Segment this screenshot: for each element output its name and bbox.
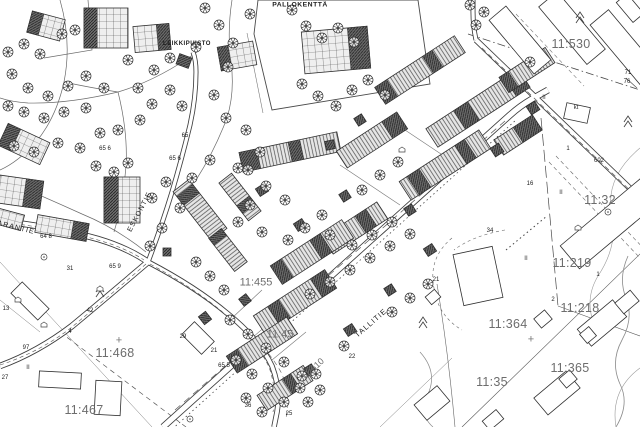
storey-mark: II xyxy=(542,95,545,101)
tree-symbol xyxy=(43,91,53,101)
tree-symbol xyxy=(263,383,273,393)
plot-number: 31 xyxy=(67,266,74,272)
building xyxy=(0,175,44,209)
tree-symbol xyxy=(225,315,235,325)
tree-symbol xyxy=(279,397,289,407)
tree-symbol xyxy=(135,115,145,125)
tree-symbol xyxy=(145,241,155,251)
tree-symbol xyxy=(219,285,229,295)
tree-symbol xyxy=(365,253,375,263)
tree-symbol xyxy=(479,7,489,17)
tree-symbol xyxy=(331,101,341,111)
building xyxy=(163,248,171,256)
tree-symbol xyxy=(191,257,201,267)
tree-symbol xyxy=(325,230,335,240)
parcel-label-11-32: 11:32 xyxy=(584,194,616,207)
tree-symbol xyxy=(255,147,265,157)
elevation-number: 65 6 xyxy=(169,156,181,162)
plot-number: 76 xyxy=(624,79,631,85)
tree-symbol xyxy=(161,177,171,187)
tree-symbol xyxy=(405,229,415,239)
elevation-number: 65 9 xyxy=(109,264,121,270)
building xyxy=(482,410,504,427)
tree-symbol xyxy=(228,38,238,48)
tree-symbol xyxy=(315,385,325,395)
well-icon xyxy=(187,416,193,422)
tree-symbol xyxy=(393,157,403,167)
tree-symbol xyxy=(325,277,335,287)
tree-symbol xyxy=(241,393,251,403)
tree-symbol xyxy=(81,103,91,113)
building xyxy=(239,294,252,307)
tree-symbol xyxy=(205,271,215,281)
tree-symbol xyxy=(333,23,343,33)
elevation-number: 65 xyxy=(182,133,189,139)
parcel-label-11-467: 11:467 xyxy=(64,404,103,417)
tree-symbol xyxy=(357,185,367,195)
building xyxy=(176,54,192,69)
plot-number: 1 xyxy=(566,146,569,152)
tree-symbol xyxy=(313,91,323,101)
tree-symbol xyxy=(123,55,133,65)
building xyxy=(534,310,552,328)
conifer-icon xyxy=(419,317,427,328)
tree-symbol xyxy=(209,90,219,100)
tree-symbol xyxy=(345,265,355,275)
tree-symbol xyxy=(261,343,271,353)
tree-symbol xyxy=(385,241,395,251)
elevation-number: 65 5 xyxy=(218,363,230,369)
plot-number: 22 xyxy=(349,354,356,360)
tree-symbol xyxy=(99,83,109,93)
building xyxy=(133,23,171,52)
tree-symbol xyxy=(165,85,175,95)
tree-symbol xyxy=(95,128,105,138)
tree-symbol xyxy=(283,235,293,245)
plot-number: 34 xyxy=(487,228,494,234)
tree-symbol xyxy=(157,223,167,233)
building xyxy=(39,371,82,389)
building xyxy=(84,8,128,48)
tree-symbol xyxy=(205,155,215,165)
tree-symbol xyxy=(465,0,475,10)
building xyxy=(270,220,353,285)
tree-symbol xyxy=(301,21,311,31)
tree-symbol xyxy=(29,147,39,157)
tree-symbol xyxy=(245,9,255,19)
storey-mark: II xyxy=(26,365,29,371)
building xyxy=(301,26,370,74)
area-label-pallokentta: PALLOKENTTÄ xyxy=(272,3,328,10)
tree-symbol xyxy=(280,195,290,205)
tree-symbol xyxy=(35,49,45,59)
tree-symbol xyxy=(7,69,17,79)
tree-symbol xyxy=(231,355,241,365)
storey-mark: II xyxy=(524,256,527,262)
plot-number: 42 xyxy=(87,308,94,314)
boulder-icon xyxy=(97,286,103,291)
plot-number: 4 xyxy=(68,329,71,335)
parcel-label-11-365: 11:365 xyxy=(550,362,589,375)
area-label-leikkipuisto: LEIKKIPUISTO xyxy=(163,41,211,47)
parcel-label-11-219: 11:219 xyxy=(552,257,591,270)
tree-symbol xyxy=(243,165,253,175)
tree-symbol xyxy=(387,217,397,227)
plot-number: 1 xyxy=(596,272,599,278)
plot-number: 25 xyxy=(286,411,293,417)
tree-symbol xyxy=(525,57,535,67)
plot-number: 21 xyxy=(433,277,440,283)
building xyxy=(354,114,366,126)
elevation-number: 64 8 xyxy=(40,234,52,240)
tree-symbol xyxy=(75,143,85,153)
plot-number: 2 xyxy=(551,297,554,303)
building xyxy=(198,311,211,324)
boulder-icon xyxy=(399,147,405,152)
building xyxy=(325,140,336,151)
building xyxy=(423,244,436,257)
tree-symbol xyxy=(59,107,69,117)
tree-symbol xyxy=(233,217,243,227)
plot-number: 13 xyxy=(3,306,10,312)
plot-number: 36 xyxy=(245,403,252,409)
building xyxy=(339,190,351,202)
storey-mark: II xyxy=(559,190,562,196)
plot-number: 71 xyxy=(625,70,632,76)
plot-number: 21 xyxy=(211,348,218,354)
parcel-label-11-218: 11:218 xyxy=(560,302,599,315)
building xyxy=(414,386,450,421)
conifer-icon xyxy=(624,116,632,127)
tree-symbol xyxy=(221,113,231,123)
tree-symbol xyxy=(303,397,313,407)
tree-symbol xyxy=(245,200,255,210)
well-icon xyxy=(41,254,47,260)
tree-symbol xyxy=(257,407,267,417)
tree-symbol xyxy=(279,357,289,367)
tree-symbol xyxy=(375,170,385,180)
tree-symbol xyxy=(295,383,305,393)
tree-symbol xyxy=(367,230,377,240)
building xyxy=(0,123,50,164)
parcel-label-11-455: 11:455 xyxy=(240,278,273,289)
tree-symbol xyxy=(113,125,123,135)
tree-symbol xyxy=(339,341,349,351)
tree-symbol xyxy=(223,62,233,72)
parcel-label-11-468: 11:468 xyxy=(95,347,134,360)
boulder-icon xyxy=(41,322,47,327)
tree-symbol xyxy=(57,29,67,39)
elevation-number: 65 6 xyxy=(99,146,111,152)
tree-symbol xyxy=(91,161,101,171)
tree-symbol xyxy=(23,83,33,93)
tree-symbol xyxy=(261,181,271,191)
tree-symbol xyxy=(149,65,159,75)
tree-symbol xyxy=(363,75,373,85)
tree-symbol xyxy=(471,20,481,30)
building xyxy=(219,173,261,221)
tree-symbol xyxy=(347,85,357,95)
plot-number: 97 xyxy=(23,345,30,351)
parcel-label-11-45: 11:45 xyxy=(267,330,294,341)
parcel-label-11-35: 11:35 xyxy=(476,376,508,389)
tree-symbol xyxy=(423,279,433,289)
tree-symbol xyxy=(165,53,175,63)
building xyxy=(616,0,640,22)
tree-symbol xyxy=(243,329,253,339)
plot-number: 27 xyxy=(2,375,9,381)
tree-symbol xyxy=(317,33,327,43)
building xyxy=(453,246,503,305)
survey-cross: + xyxy=(528,335,534,346)
tree-symbol xyxy=(147,99,157,109)
tree-symbol xyxy=(241,125,251,135)
tree-symbol xyxy=(233,163,243,173)
boulder-icon xyxy=(575,225,581,230)
tree-symbol xyxy=(70,25,80,35)
survey-cross: + xyxy=(116,336,122,347)
parcel-label-11-364: 11:364 xyxy=(488,318,527,331)
building xyxy=(384,284,396,296)
plot-number: 29 xyxy=(180,334,187,340)
building-mark-kt: kt xyxy=(574,105,579,111)
tree-symbol xyxy=(247,369,257,379)
tree-symbol xyxy=(177,101,187,111)
tree-symbol xyxy=(9,141,19,151)
tree-symbol xyxy=(349,37,359,47)
tree-symbol xyxy=(53,138,63,148)
tree-symbol xyxy=(19,107,29,117)
tree-symbol xyxy=(405,293,415,303)
tree-symbol xyxy=(123,158,133,168)
tree-symbol xyxy=(317,210,327,220)
tree-symbol xyxy=(39,113,49,123)
building xyxy=(239,132,341,172)
tree-symbol xyxy=(187,173,197,183)
tree-symbol xyxy=(214,20,224,30)
tree-symbol xyxy=(3,47,13,57)
tree-symbol xyxy=(63,81,73,91)
plot-number: 602 xyxy=(594,158,604,164)
tree-symbol xyxy=(175,203,185,213)
plot-number: 16 xyxy=(527,181,534,187)
tree-symbol xyxy=(19,39,29,49)
building xyxy=(209,229,247,272)
tree-symbol xyxy=(305,289,315,299)
parcel-label-11-530: 11:530 xyxy=(551,38,590,51)
tree-symbol xyxy=(109,167,119,177)
tree-symbol xyxy=(380,90,390,100)
tree-symbol xyxy=(81,71,91,81)
tree-symbol xyxy=(200,3,210,13)
tree-symbol xyxy=(297,79,307,89)
map-canvas[interactable]: PALLOKENTTÄ LEIKKIPUISTO TALLITIE ESKONT… xyxy=(0,0,640,427)
tree-symbol xyxy=(133,83,143,93)
tree-symbol xyxy=(347,240,357,250)
tree-symbol xyxy=(257,227,267,237)
tree-symbol xyxy=(3,101,13,111)
tree-symbol xyxy=(300,223,310,233)
